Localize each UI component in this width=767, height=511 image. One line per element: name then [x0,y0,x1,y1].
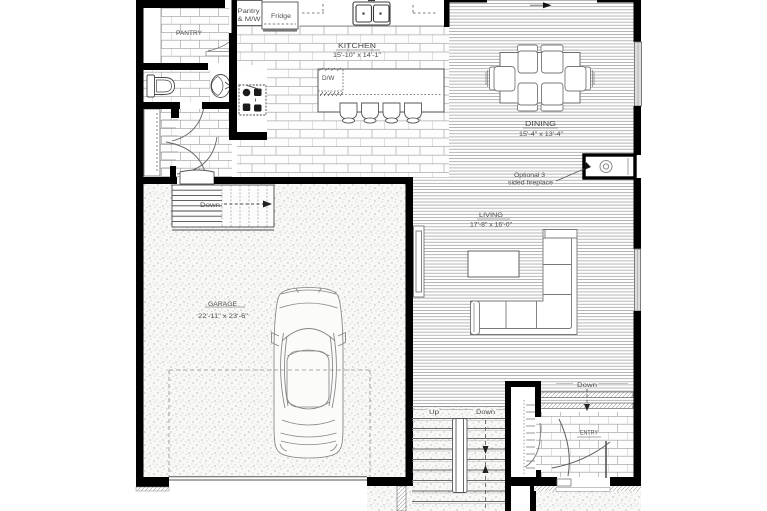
svg-text:Down: Down [200,202,221,209]
svg-text:Pantry: Pantry [238,8,261,15]
svg-text:ENTRY: ENTRY [580,430,598,437]
svg-text:Down: Down [476,409,496,416]
svg-text:Up: Up [429,409,440,416]
svg-text:15'-4" x 13'-4": 15'-4" x 13'-4" [519,131,563,138]
svg-text:Down: Down [577,382,598,389]
svg-text:PANTRY: PANTRY [176,30,203,37]
svg-text:KITCHEN: KITCHEN [338,43,376,50]
svg-text:Fridge: Fridge [271,13,291,20]
svg-text:sided fireplace: sided fireplace [508,180,554,187]
svg-text:17'-8" x 16'-0": 17'-8" x 16'-0" [470,222,512,229]
svg-text:22'-11" x 23'-6": 22'-11" x 23'-6" [198,313,248,320]
svg-text:DINING: DINING [525,121,556,128]
svg-text:LIVING: LIVING [479,212,503,219]
svg-text:15'-10" x 14'-1": 15'-10" x 14'-1" [333,52,381,59]
svg-text:Optional 3: Optional 3 [514,172,546,179]
svg-text:D/W: D/W [322,75,335,82]
svg-text:& M/W: & M/W [238,16,261,23]
